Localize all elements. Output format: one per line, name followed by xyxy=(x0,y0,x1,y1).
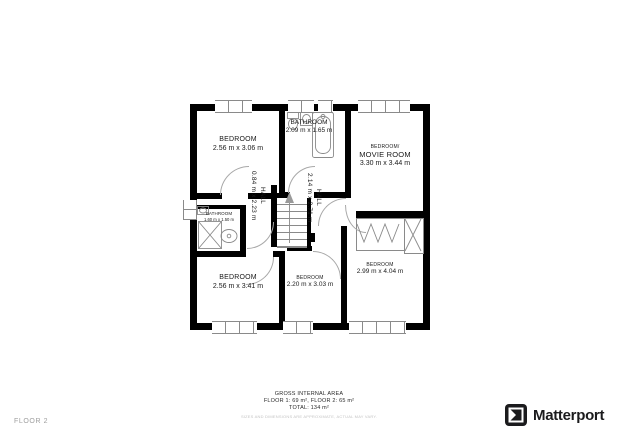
room-dimensions: 2.20 m x 3.03 m xyxy=(287,281,334,289)
room-name: HALL xyxy=(258,160,267,232)
door-arc xyxy=(220,166,249,195)
wall xyxy=(197,193,222,199)
room-label-bedroom-top-left: BEDROOM 2.56 m x 3.06 m xyxy=(213,135,263,153)
room-label-bedroom-bottom-left: BEDROOM 2.56 m x 3.41 m xyxy=(213,273,263,291)
matterport-logo-icon xyxy=(505,404,527,426)
window xyxy=(283,321,313,334)
gross-internal-area-title: GROSS INTERNAL AREA xyxy=(0,391,618,398)
room-name: BATHROOM xyxy=(204,211,234,217)
brand-name: Matterport xyxy=(533,407,604,424)
closet xyxy=(404,218,424,254)
window xyxy=(183,200,197,220)
room-name: BEDROOM xyxy=(213,273,263,282)
toilet-icon xyxy=(288,113,299,119)
room-dimensions: 1.60 m x 1.50 m xyxy=(204,217,234,223)
room-name: HALL xyxy=(314,162,323,234)
room-label-bedroom-bottom-right: BEDROOM 2.99 m x 4.04 m xyxy=(357,262,404,276)
room-dimensions: 2.99 m x 4.04 m xyxy=(357,268,404,276)
window xyxy=(212,321,257,334)
room-label-hall-2: HALL 2.14 m x 2.71 m xyxy=(303,162,323,234)
room-dimensions: 2.56 m x 3.41 m xyxy=(213,282,263,291)
window xyxy=(215,100,252,113)
wall xyxy=(279,111,285,193)
room-dimensions: 2.09 m x 1.65 m xyxy=(286,127,333,135)
room-label-bathroom-small: BATHROOM 1.60 m x 1.50 m xyxy=(204,211,234,222)
room-label-movie-room: BEDROOM/ MOVIE ROOM 3.30 m x 3.44 m xyxy=(359,144,411,168)
door-arc xyxy=(345,205,366,233)
shower-icon xyxy=(199,222,222,249)
window xyxy=(349,321,406,334)
wall xyxy=(197,205,240,209)
window xyxy=(318,100,333,113)
room-label-bathroom-top: BATHROOM 2.09 m x 1.65 m xyxy=(286,119,333,135)
wall xyxy=(240,205,246,251)
window xyxy=(288,100,314,113)
room-dimensions: 0.84 m x 2.23 m xyxy=(249,160,258,232)
room-dimensions: 3.30 m x 3.44 m xyxy=(359,159,411,168)
wall xyxy=(345,111,351,198)
window xyxy=(358,100,410,113)
floor-label: FLOOR 2 xyxy=(14,418,48,425)
room-name: MOVIE ROOM xyxy=(359,150,411,159)
wall xyxy=(279,251,285,323)
wall xyxy=(197,251,246,257)
sink-icon xyxy=(221,230,237,243)
room-label-bedroom-bottom-middle: BEDROOM 2.20 m x 3.03 m xyxy=(287,275,334,289)
room-label-hall-1: HALL 0.84 m x 2.23 m xyxy=(247,160,267,232)
wall xyxy=(356,211,430,218)
room-dimensions: 2.56 m x 3.06 m xyxy=(213,144,263,153)
room-name: BEDROOM xyxy=(213,135,263,144)
room-name: BATHROOM xyxy=(286,119,333,127)
wall xyxy=(341,226,347,323)
matterport-logo: Matterport xyxy=(505,404,604,426)
room-dimensions: 2.14 m x 2.71 m xyxy=(305,162,314,234)
floorplan-page: BEDROOM 2.56 m x 3.06 m BATHROOM 2.09 m … xyxy=(0,0,618,437)
